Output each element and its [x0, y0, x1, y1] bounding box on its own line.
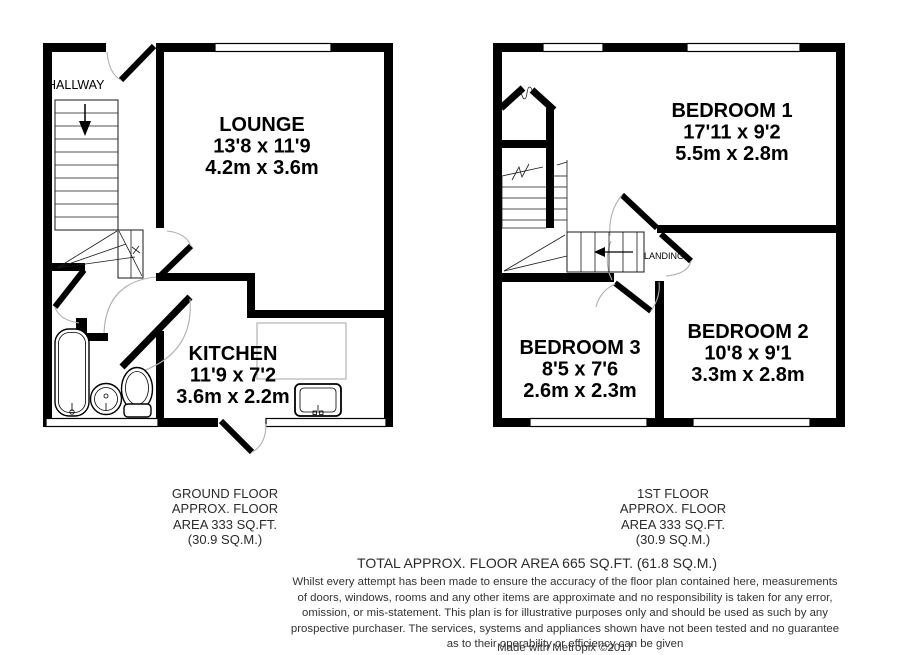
toilet-icon [122, 368, 153, 418]
bathroom-window [46, 419, 158, 427]
stairs-direction-arrow-icon [594, 247, 633, 257]
bedroom2-size-metric: 3.3m x 2.8m [691, 364, 804, 386]
lounge-window [215, 44, 331, 52]
kitchen-back-door [221, 421, 252, 452]
bathtub-icon [55, 329, 89, 416]
disclaimer-line: of doors, windows, rooms and any other i… [235, 591, 895, 607]
stair-break-mark [512, 164, 529, 180]
kitchen-size-imperial: 11'9 x 7'2 [190, 365, 276, 387]
bathroom-door [55, 270, 84, 307]
caption-line: APPROX. FLOOR [523, 501, 823, 516]
room-label-bedroom3: BEDROOM 3 [519, 337, 640, 359]
metropix-credit: Made with Metropix ©2017 [235, 641, 895, 655]
room-label-bedroom2: BEDROOM 2 [687, 321, 808, 343]
room-label-kitchen: KITCHEN [189, 343, 278, 365]
floor-plans-drawing: HALLWAY LOUNGE 13'8 x 11'9 4.2m x 3.6m K… [0, 0, 900, 470]
bedroom1-size-metric: 5.5m x 2.8m [675, 143, 788, 165]
angled-wall [501, 88, 523, 108]
disclaimer-line: omission, or mis-statement. This plan is… [235, 606, 895, 622]
bedroom3-size-metric: 2.6m x 2.3m [523, 380, 636, 402]
total-area-text: TOTAL APPROX. FLOOR AREA 665 SQ.FT. (61.… [287, 555, 787, 571]
room-label-hallway: HALLWAY [47, 78, 105, 92]
room-label-bedroom1: BEDROOM 1 [671, 100, 792, 122]
bedroom3-door [615, 283, 651, 311]
ground-stairs [55, 100, 143, 278]
lounge-door [161, 246, 191, 275]
disclaimer-line: prospective purchaser. The services, sys… [235, 622, 895, 638]
caption-first-floor: 1ST FLOOR APPROX. FLOOR AREA 333 SQ.FT. … [523, 486, 823, 548]
bedroom1-size-imperial: 17'11 x 9'2 [683, 122, 780, 144]
caption-line: (30.9 SQ.M.) [523, 532, 823, 547]
bedroom2-window [693, 419, 810, 427]
caption-ground-floor: GROUND FLOOR APPROX. FLOOR AREA 333 SQ.F… [75, 486, 375, 548]
bedroom1-door [622, 195, 657, 228]
angled-wall [532, 90, 554, 110]
lounge-size-imperial: 13'8 x 11'9 [213, 136, 310, 158]
bedroom1-window [687, 44, 800, 52]
caption-line: 1ST FLOOR [523, 486, 823, 501]
stairs-down-arrow-icon [79, 104, 91, 136]
basin-icon [91, 384, 122, 415]
kitchen-sink-icon [295, 384, 341, 416]
room-label-lounge: LOUNGE [219, 114, 305, 136]
bedroom3-window [530, 419, 647, 427]
caption-line: AREA 333 SQ.FT. [523, 517, 823, 532]
caption-line: AREA 333 SQ.FT. [75, 517, 375, 532]
kitchen-window [266, 419, 386, 427]
ground-floor-plan: HALLWAY LOUNGE 13'8 x 11'9 4.2m x 3.6m K… [43, 43, 393, 452]
kitchen-size-metric: 3.6m x 2.2m [176, 386, 289, 408]
first-stairs [502, 160, 644, 272]
caption-line: GROUND FLOOR [75, 486, 375, 501]
entrance-door [121, 46, 154, 80]
bedroom2-size-imperial: 10'8 x 9'1 [704, 343, 791, 365]
caption-line: APPROX. FLOOR [75, 501, 375, 516]
first-floor-plan: LANDING BEDROOM 1 17'11 x 9'2 5.5m x 2.8… [493, 43, 845, 427]
lounge-size-metric: 4.2m x 3.6m [205, 157, 318, 179]
caption-line: (30.9 SQ.M.) [75, 532, 375, 547]
window [543, 44, 603, 52]
disclaimer-line: Whilst every attempt has been made to en… [235, 575, 895, 591]
room-label-landing: LANDING [644, 251, 684, 261]
bedroom3-size-imperial: 8'5 x 7'6 [542, 359, 618, 381]
floor-plan-page: HALLWAY LOUNGE 13'8 x 11'9 4.2m x 3.6m K… [0, 0, 900, 655]
